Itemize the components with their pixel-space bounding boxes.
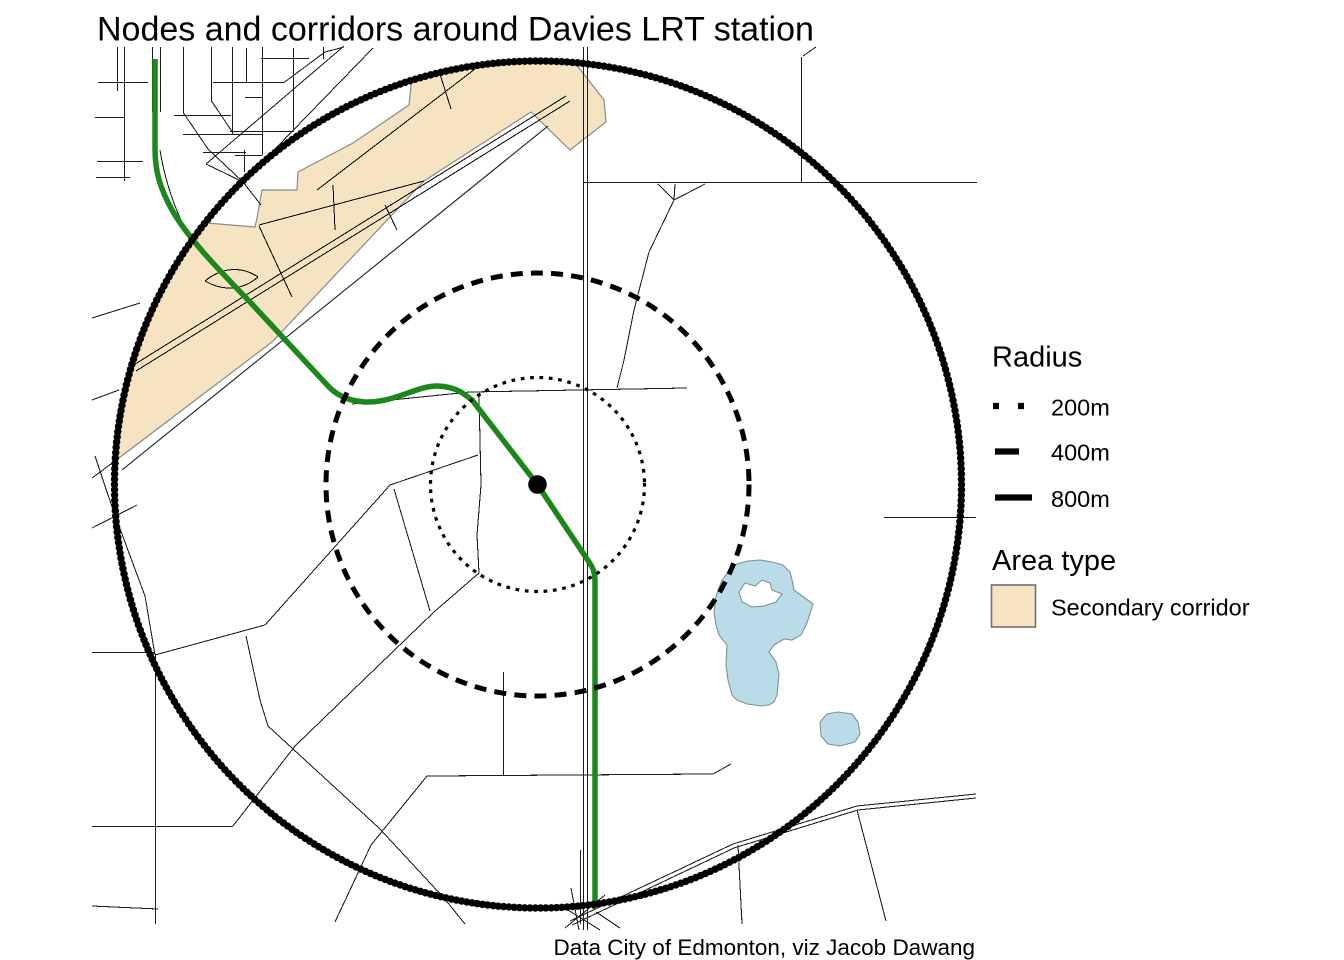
svg-text:400m: 400m: [1051, 440, 1110, 466]
svg-text:Nodes and corridors around Dav: Nodes and corridors around Davies LRT st…: [97, 11, 814, 49]
svg-text:Radius: Radius: [992, 342, 1082, 374]
svg-text:800m: 800m: [1051, 486, 1110, 512]
svg-text:Secondary corridor: Secondary corridor: [1051, 595, 1250, 621]
svg-text:Data City of Edmonton, viz Jac: Data City of Edmonton, viz Jacob Dawang: [554, 935, 975, 960]
svg-text:200m: 200m: [1051, 395, 1110, 421]
svg-text:Area type: Area type: [992, 545, 1116, 577]
